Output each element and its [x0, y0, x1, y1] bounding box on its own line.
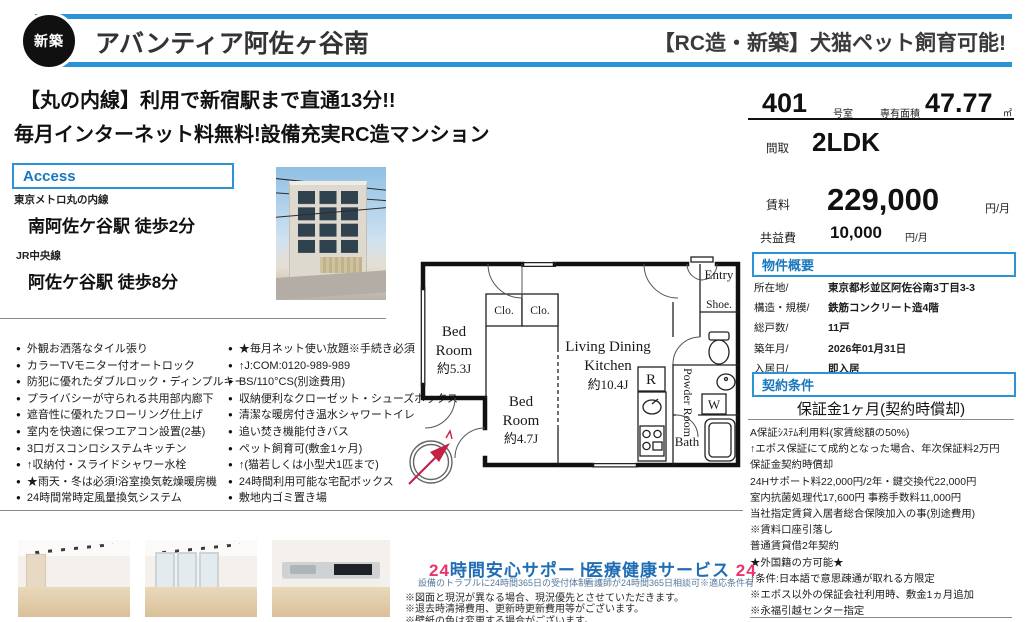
washer-label: W [708, 397, 721, 412]
grill [653, 442, 662, 450]
burner [654, 430, 661, 437]
overview-heading: 物件概要 [754, 255, 814, 274]
entry-step [691, 257, 713, 262]
layout-value: 2LDK [812, 127, 880, 158]
toilet-bowl [709, 340, 729, 364]
kitchen-sink [643, 400, 661, 414]
header-bottom-rule [35, 62, 1012, 67]
overview-label: 総戸数/ [754, 320, 828, 340]
overview-label: 築年月/ [754, 341, 828, 361]
door-arc-bed1-south [425, 398, 455, 428]
feature-item: カラーTVモニター付オートロック [16, 358, 228, 375]
washbasin [717, 374, 735, 390]
ldk-label: Kitchen [584, 358, 632, 374]
floor-plan: Bed Room 約5.3J Bed Room 約4.7J Living Din… [382, 256, 742, 508]
note-line: ※図面と現況が異なる場合、現況優先とさせていただきます。 [405, 593, 684, 604]
contract-line: A保証ｼｽﾃﾑ利用料(家賃総額の50%) [750, 426, 1022, 442]
contract-line: 普通賃貸借2年契約 [750, 539, 1022, 555]
ldk-size: 約10.4J [588, 377, 629, 392]
burner [643, 442, 650, 449]
closet1-label: Clo. [494, 305, 514, 317]
interior-photo-living-2 [145, 540, 257, 617]
catchphrase-line2: 毎月インターネット料無料!設備充実RC造マンション [14, 118, 490, 147]
access-heading: Access [14, 168, 76, 185]
feature-item: 室内を快適に保つエアコン設置(2基) [16, 424, 228, 441]
contract-line: ↑条件:日本語で意思疎通が取れる方限定 [750, 572, 1022, 588]
overview-row: 築年月/2026年01月31日 [754, 341, 1016, 361]
cooktop [334, 564, 372, 575]
rail-line-2: JR中央線 [16, 248, 61, 263]
layout-label: 間取 [766, 140, 789, 156]
contract-line: ※賃料口座引落し [750, 523, 1022, 539]
interior-photo-kitchen [272, 540, 390, 617]
door-arc-ldk [644, 264, 678, 298]
closet2-label: Clo. [530, 305, 550, 317]
divider-under-features [0, 510, 743, 511]
building-exterior-photo [276, 167, 386, 300]
medical-service-caption: 看護師が24時間365日相談可※適応条件有 [585, 576, 754, 589]
divider-under-access [0, 318, 386, 319]
fee-unit: 円/月 [905, 229, 928, 244]
wood-floor [145, 587, 257, 617]
support-service-caption: 設備のトラブルに24時間365日の受付体制 [418, 576, 587, 589]
room-number: 401 [762, 88, 807, 119]
disclaimer-notes: ※図面と現況が異なる場合、現況優先とさせていただきます。 ※退去時清掃費用、更新… [405, 593, 684, 622]
wood-floor [18, 587, 130, 617]
feature-item: ★雨天・冬は必須!浴室換気乾燥暖房機 [16, 474, 228, 491]
stove [640, 426, 664, 456]
washbasin-faucet [725, 378, 728, 381]
overview-label: 構造・規模/ [754, 300, 828, 320]
door-arc-bed2-west [455, 428, 485, 458]
feature-item: プライバシーが守られる共用部内廊下 [16, 391, 228, 408]
bed2-size: 約4.7J [504, 431, 538, 446]
bed1-size: 約5.3J [437, 361, 471, 376]
powder-room-label: Powder Room [681, 368, 695, 438]
property-name: アバンティア阿佐ヶ谷南 [95, 24, 369, 60]
badge-label: 新築 [34, 31, 64, 51]
overview-row: 構造・規模/鉄筋コンクリート造4階 [754, 300, 1016, 320]
station-1: 南阿佐ケ谷駅 徒歩2分 [28, 212, 195, 237]
building-fence [320, 257, 362, 273]
overview-section-header: 物件概要 [752, 252, 1016, 277]
unit-underline [748, 118, 1014, 120]
header-top-rule [35, 14, 1012, 19]
fee-label: 共益費 [760, 229, 796, 246]
contract-section-header: 契約条件 [752, 372, 1016, 397]
ldk-label: Living Dining [565, 339, 651, 355]
new-construction-badge: 新築 [20, 12, 78, 70]
contract-line: ※エポス以外の保証会社利用時、敷金1ヵ月追加 [750, 588, 1022, 604]
entry-label: Entry [705, 267, 734, 282]
feature-item: 3口ガスコンロシステムキッチン [16, 441, 228, 458]
bed1-label: Room [436, 343, 473, 359]
rent-unit: 円/月 [985, 200, 1010, 216]
overview-value: 東京都杉並区阿佐谷南3丁目3-3 [828, 280, 975, 300]
contract-line: ↑エポス保証にて成約となった場合、年次保証料2万円 [750, 442, 1022, 458]
overview-value: 2026年01月31日 [828, 341, 906, 361]
door-arc-bed1 [488, 264, 522, 298]
feature-item: 防犯に優れたダブルロック・ディンプルキー [16, 374, 228, 391]
wood-floor [272, 587, 390, 617]
building-windows [298, 191, 358, 253]
compass-icon [409, 431, 452, 484]
feature-item: 遮音性に優れたフローリング仕上げ [16, 407, 228, 424]
overview-row: 総戸数/11戸 [754, 320, 1016, 340]
station-2: 阿佐ケ谷駅 徒歩8分 [28, 268, 178, 293]
interior-photo-living-1 [18, 540, 130, 617]
kitchen-sink [290, 565, 316, 574]
fridge-label: R [646, 372, 656, 388]
bathtub-inner [709, 423, 731, 457]
catchphrase-line1: 【丸の内線】利用で新宿駅まで直通13分!! [20, 84, 396, 113]
note-line: ※退去時清掃費用、更新時更新費用等がございます。 [405, 604, 684, 615]
feature-item: 外観お洒落なタイル張り [16, 341, 228, 358]
building-facade [289, 181, 367, 278]
feature-list-left: 外観お洒落なタイル張り カラーTVモニター付オートロック 防犯に優れたダブルロッ… [16, 341, 228, 507]
header-catch: 【RC造・新築】犬猫ペット飼育可能! [654, 27, 1006, 57]
divider-bottom-right [750, 617, 1012, 618]
contract-details: A保証ｼｽﾃﾑ利用料(家賃総額の50%) ↑エポス保証にて成約となった場合、年次… [750, 426, 1022, 620]
contract-line: 室内抗菌処理代17,600円 事務手数料11,000円 [750, 491, 1022, 507]
access-section-header: Access [12, 163, 234, 189]
rent-label: 賃料 [766, 196, 790, 213]
bed2-label: Bed [509, 394, 534, 410]
fee-value: 10,000 [830, 223, 882, 243]
rent-value: 229,000 [827, 182, 939, 218]
burner [643, 430, 650, 437]
overview-rows: 所在地/東京都杉並区阿佐谷南3丁目3-3 構造・規模/鉄筋コンクリート造4階 総… [754, 280, 1016, 381]
contract-line: 当社指定賃貸入居者総合保険加入の事(別途費用) [750, 507, 1022, 523]
toilet-tank [709, 332, 729, 340]
contract-line: 24Hサポート料22,000円/2年・鍵交換代22,000円 [750, 475, 1022, 491]
contract-line: ★外国籍の方可能★ [750, 556, 1022, 572]
overview-row: 所在地/東京都杉並区阿佐谷南3丁目3-3 [754, 280, 1016, 300]
shoe-label: Shoe. [706, 299, 732, 311]
bath-label: Bath [675, 434, 700, 449]
contract-line: 保証金契約時償却 [750, 458, 1022, 474]
contract-line: ※永福引越センター指定 [750, 604, 1022, 620]
contract-heading: 契約条件 [754, 375, 814, 394]
property-flyer: 新築 アバンティア阿佐ヶ谷南 【RC造・新築】犬猫ペット飼育可能! 【丸の内線】… [0, 0, 1028, 622]
overview-value: 鉄筋コンクリート造4階 [828, 300, 939, 320]
overview-value: 11戸 [828, 320, 850, 340]
feature-item: 24時間常時定風量換気システム [16, 490, 228, 507]
rail-line-1: 東京メトロ丸の内線 [14, 192, 109, 207]
contract-highlight: 保証金1ヶ月(契約時償却) [748, 398, 1014, 419]
overview-label: 所在地/ [754, 280, 828, 300]
door-arc-toilet [673, 337, 700, 364]
divider-contract [748, 419, 1014, 420]
feature-item: ↑収納付・スライドシャワー水栓 [16, 457, 228, 474]
area-value: 47.77 [925, 88, 993, 119]
bed1-label: Bed [442, 324, 467, 340]
note-line: ※壁紙の色は変更する場合がございます。 [405, 616, 684, 622]
bed2-label: Room [503, 413, 540, 429]
